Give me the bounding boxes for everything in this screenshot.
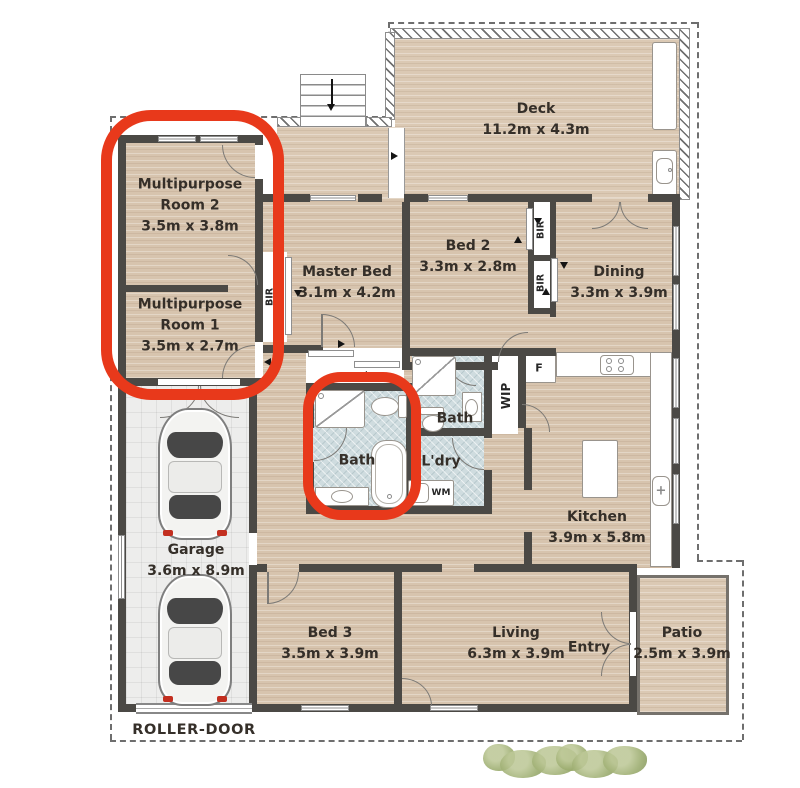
cooktop-icon (600, 355, 634, 375)
property-line (697, 22, 699, 560)
car-taillight (217, 696, 227, 702)
door-leaf (321, 314, 323, 347)
deck-floor (277, 127, 679, 200)
car-rear-window (169, 495, 221, 519)
annotation-highlight-multipurpose-rooms (101, 110, 284, 400)
slide-arrow (338, 340, 345, 348)
wall (474, 564, 637, 572)
window (310, 195, 356, 201)
cooktop-burner (606, 366, 612, 372)
wall (402, 202, 410, 370)
wall (528, 308, 556, 314)
deck-edge (390, 28, 680, 39)
deck-edge (277, 117, 302, 127)
window (673, 284, 679, 330)
window (673, 418, 679, 464)
deck-sink-tap (668, 168, 672, 172)
cooktop-burner (606, 358, 612, 364)
room-label-kitchen: Kitchen3.9m x 5.8m (548, 507, 646, 549)
window (118, 535, 125, 599)
room-label-bed3: Bed 33.5m x 3.9m (281, 623, 379, 665)
deck-bench (652, 42, 677, 130)
wall (404, 194, 428, 202)
sliding-door (526, 208, 533, 250)
wall (257, 564, 267, 572)
wall (404, 348, 556, 356)
deck-edge (366, 117, 392, 127)
window (430, 705, 478, 711)
car-taillight (163, 530, 173, 536)
deck-edge (679, 28, 690, 200)
stairs-arrow-head (327, 104, 335, 111)
room-label-garage: Garage3.6m x 8.9m (147, 540, 245, 582)
room-label-dining: Dining3.3m x 3.9m (570, 262, 668, 304)
shower-head (415, 359, 421, 365)
car-windshield (167, 432, 223, 458)
wm-label: WM (432, 488, 451, 498)
wall (358, 194, 382, 202)
stairs (300, 74, 366, 127)
property-line (742, 560, 744, 740)
car-icon (158, 574, 232, 706)
room-label-bed2: Bed 23.3m x 2.8m (419, 236, 517, 278)
shrub-icon (603, 746, 647, 775)
wall (299, 564, 442, 572)
walkway-arrow (391, 152, 398, 160)
door-leaf (267, 572, 269, 604)
property-line (697, 560, 742, 562)
window (673, 358, 679, 408)
window (301, 705, 349, 711)
wall (524, 532, 532, 568)
car-rear-window (169, 661, 221, 685)
wall (394, 572, 402, 704)
room-label-deck: Deck11.2m x 4.3m (482, 99, 589, 141)
car-icon (158, 408, 232, 540)
bir-label: BIR (536, 221, 547, 239)
wall (484, 348, 492, 438)
bir-label: BIR (536, 274, 547, 292)
room-label-patio: Patio2.5m x 3.9m (633, 623, 731, 665)
kitchen-bench (650, 352, 672, 567)
car-taillight (163, 696, 173, 702)
wall (524, 428, 532, 490)
cooktop-burner (618, 358, 624, 364)
annotation-highlight-bathroom (303, 372, 421, 520)
roller-door-label: ROLLER-DOOR (132, 720, 256, 742)
deck-edge (385, 32, 395, 120)
room-label-master-bed: Master Bed3.1m x 4.2m (298, 262, 396, 304)
window (673, 226, 679, 276)
sliding-door (354, 361, 400, 368)
cooktop-burner (618, 366, 624, 372)
kitchen-tap-icon: + (656, 484, 667, 499)
sliding-door (285, 257, 292, 335)
fridge-label: F (535, 362, 543, 375)
wall (468, 194, 592, 202)
wip-label: WIP (499, 383, 513, 410)
window (673, 474, 679, 524)
property-line (388, 22, 697, 24)
door-opening (249, 533, 257, 565)
car-roof (168, 461, 222, 493)
stairs-arrow (331, 79, 333, 106)
kitchen-island (582, 440, 618, 498)
deck-walkway (388, 128, 405, 202)
sliding-door (551, 258, 558, 302)
car-windshield (167, 598, 223, 624)
room-label-living: Living6.3m x 3.9m (467, 623, 565, 665)
room-label-laundry: L'dry (421, 452, 460, 473)
floor-plan: + (0, 0, 800, 788)
window (428, 195, 468, 201)
car-roof (168, 627, 222, 659)
car-taillight (217, 530, 227, 536)
room-label-bath-ensuite: Bath (437, 409, 474, 430)
slide-arrow (560, 262, 568, 269)
sliding-door (308, 350, 354, 357)
room-label-entry: Entry (568, 638, 610, 659)
